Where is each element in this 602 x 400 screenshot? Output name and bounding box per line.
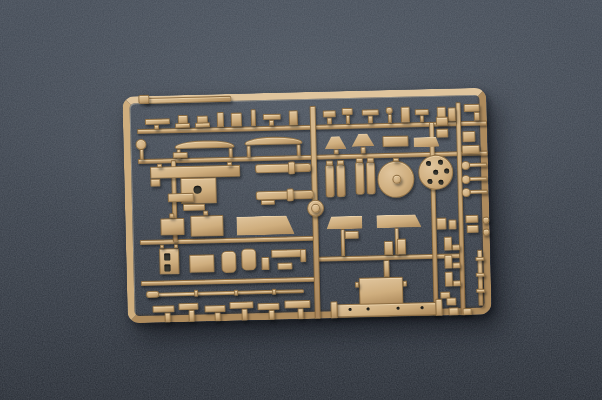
part-bow-post bbox=[297, 144, 301, 156]
part-clamp-leg bbox=[189, 310, 195, 322]
part-recuperator-cylinder bbox=[256, 190, 314, 200]
part-hinge-block bbox=[436, 218, 446, 230]
part-tent-cone bbox=[351, 133, 374, 147]
part-z-bracket-bottom bbox=[446, 297, 456, 305]
part-wheel-hole bbox=[427, 179, 432, 184]
part-wheel-hole bbox=[438, 180, 443, 185]
part-tbar-stem bbox=[368, 115, 373, 123]
part-panel-stub bbox=[169, 213, 174, 218]
part-tee-stem bbox=[420, 115, 424, 122]
part-round-pin-stem bbox=[388, 114, 392, 123]
part-l-bracket-foot bbox=[453, 280, 461, 286]
part-post bbox=[401, 106, 410, 122]
part-corner-bracket-leg bbox=[474, 112, 480, 121]
part-l-bracket-foot bbox=[452, 262, 460, 268]
part-recuperator-collar bbox=[288, 161, 295, 174]
part-clamp-leg bbox=[165, 312, 171, 322]
part-hatch-panel bbox=[189, 254, 214, 273]
part-wheel-hole bbox=[438, 160, 443, 165]
part-clamp-leg bbox=[242, 308, 248, 320]
part-chassis-fork bbox=[330, 301, 337, 318]
part-small-post bbox=[261, 257, 269, 270]
part-small-bracket bbox=[436, 117, 448, 126]
part-pad bbox=[241, 248, 257, 270]
part-pin bbox=[251, 109, 256, 126]
part-foot-plate bbox=[449, 307, 459, 315]
part-step-plate bbox=[465, 215, 478, 223]
part-bracket-stem bbox=[346, 115, 350, 124]
part-muffler-cylinder bbox=[355, 162, 365, 195]
runner-mid-left-horizontal bbox=[140, 236, 316, 245]
part-panel bbox=[190, 215, 224, 237]
part-step-block bbox=[462, 131, 475, 142]
part-bow-plank bbox=[244, 136, 302, 145]
part-gun-barrel-muzzle bbox=[146, 291, 159, 298]
part-wheel-hole bbox=[426, 161, 431, 166]
part-gun-cradle-arm bbox=[168, 193, 194, 203]
part-block bbox=[448, 107, 456, 121]
part-fender-wedge bbox=[376, 214, 421, 228]
part-gun-barrel-ring bbox=[234, 290, 238, 296]
part-step-plate bbox=[467, 225, 479, 233]
part-muffler-cap bbox=[326, 160, 333, 165]
part-tbar-stem bbox=[269, 120, 274, 126]
part-bow-plank bbox=[174, 140, 234, 149]
part-muffler-cylinder bbox=[336, 164, 346, 197]
part-gun-cradle-foot bbox=[183, 203, 205, 211]
part-chassis-rivet bbox=[367, 308, 370, 311]
part-chassis-rivet bbox=[349, 308, 352, 311]
part-clamp-leg bbox=[215, 312, 221, 321]
part-bow-post bbox=[247, 145, 251, 157]
part-wheel-hole bbox=[444, 169, 449, 174]
part-chassis-fork bbox=[435, 299, 442, 316]
part-l-bracket-leg bbox=[444, 254, 452, 268]
part-tow-eyelet-shaft bbox=[469, 163, 487, 167]
part-ladder-hole bbox=[164, 253, 170, 260]
part-ladder-hole bbox=[164, 264, 170, 271]
photo-stage bbox=[0, 0, 602, 400]
part-gun-barrel-ring bbox=[194, 290, 198, 297]
part-recuperator-collar bbox=[287, 188, 294, 201]
part-fender-wedge bbox=[326, 216, 362, 230]
part-step bbox=[397, 239, 406, 255]
part-clamp-leg bbox=[269, 310, 275, 320]
part-rail-stud bbox=[475, 257, 484, 261]
part-panel-stub bbox=[203, 210, 208, 215]
part-tblock-stem bbox=[327, 117, 332, 124]
part-hook-end bbox=[300, 249, 306, 262]
part-tpart bbox=[462, 145, 480, 154]
sprue-label-tab-step bbox=[138, 95, 149, 104]
part-rail-stud bbox=[476, 289, 485, 293]
part-muffler-cylinder bbox=[366, 161, 376, 194]
part-chassis-rivet bbox=[397, 307, 400, 310]
part-mount-plate-tab bbox=[403, 281, 407, 287]
part-tow-eyelet-shaft bbox=[469, 177, 487, 181]
part-block bbox=[231, 113, 242, 127]
part-tow-eyelet-shaft bbox=[470, 190, 488, 194]
runner-lower-left-horizontal bbox=[141, 277, 318, 286]
part-wedge-bar bbox=[413, 137, 439, 148]
part-muffler-cylinder bbox=[325, 164, 335, 197]
part-gun-barrel-ring bbox=[272, 289, 276, 295]
part-post bbox=[217, 112, 224, 127]
part-small-bracket bbox=[436, 129, 448, 138]
part-mg-grip bbox=[154, 125, 159, 130]
part-step bbox=[384, 241, 393, 255]
part-knob bbox=[482, 217, 489, 224]
part-foot-plate bbox=[463, 308, 472, 315]
part-ladder-knob bbox=[160, 245, 164, 249]
part-l-bracket-foot bbox=[452, 244, 460, 250]
part-gun-cradle-slab bbox=[150, 165, 240, 179]
part-angle-sight bbox=[173, 152, 188, 158]
part-clamp-leg bbox=[298, 308, 304, 319]
part-recuperator-cylinder bbox=[255, 163, 311, 173]
part-mount-plate-tab bbox=[355, 282, 359, 288]
part-gun-cradle-stub bbox=[227, 162, 232, 166]
part-muffler-cap bbox=[356, 158, 363, 163]
part-ladder-knob bbox=[174, 244, 178, 248]
part-post bbox=[289, 110, 298, 125]
part-small-plate bbox=[345, 231, 359, 239]
part-pedestal-foot bbox=[175, 123, 190, 128]
part-muffler-cap bbox=[367, 157, 374, 162]
part-wheel-hole bbox=[433, 170, 438, 175]
part-box bbox=[382, 136, 408, 148]
part-bow-post bbox=[229, 148, 233, 158]
part-pedestal-foot bbox=[195, 122, 210, 127]
part-ring-stem bbox=[140, 149, 144, 160]
part-recuperator-step bbox=[261, 200, 275, 205]
part-hook-step bbox=[277, 262, 292, 269]
part-tent-stub bbox=[334, 149, 339, 154]
part-muffler-cap bbox=[337, 160, 344, 165]
part-hinge-block bbox=[448, 219, 456, 229]
part-l-bracket-leg bbox=[445, 271, 453, 286]
part-tent-stub bbox=[361, 147, 366, 154]
part-panel bbox=[160, 218, 184, 236]
part-clamp-top bbox=[152, 305, 174, 313]
part-pad bbox=[221, 251, 237, 273]
part-hatch-stub bbox=[393, 158, 399, 162]
part-gun-cradle-stub bbox=[157, 164, 162, 168]
part-rail-stud bbox=[476, 273, 485, 277]
part-glacis-wedge bbox=[236, 215, 294, 235]
part-chassis-rivet bbox=[420, 306, 423, 309]
part-knob bbox=[483, 229, 490, 236]
sprue-label-tab bbox=[143, 96, 231, 104]
part-gun-barrel bbox=[146, 289, 304, 297]
part-mount-plate bbox=[359, 277, 404, 306]
part-mount-stub bbox=[383, 260, 389, 277]
part-l-bracket-leg bbox=[444, 236, 452, 250]
part-gun-cradle-nub bbox=[150, 179, 160, 187]
sprue-frame bbox=[122, 88, 491, 324]
part-tent-cone bbox=[324, 136, 346, 150]
